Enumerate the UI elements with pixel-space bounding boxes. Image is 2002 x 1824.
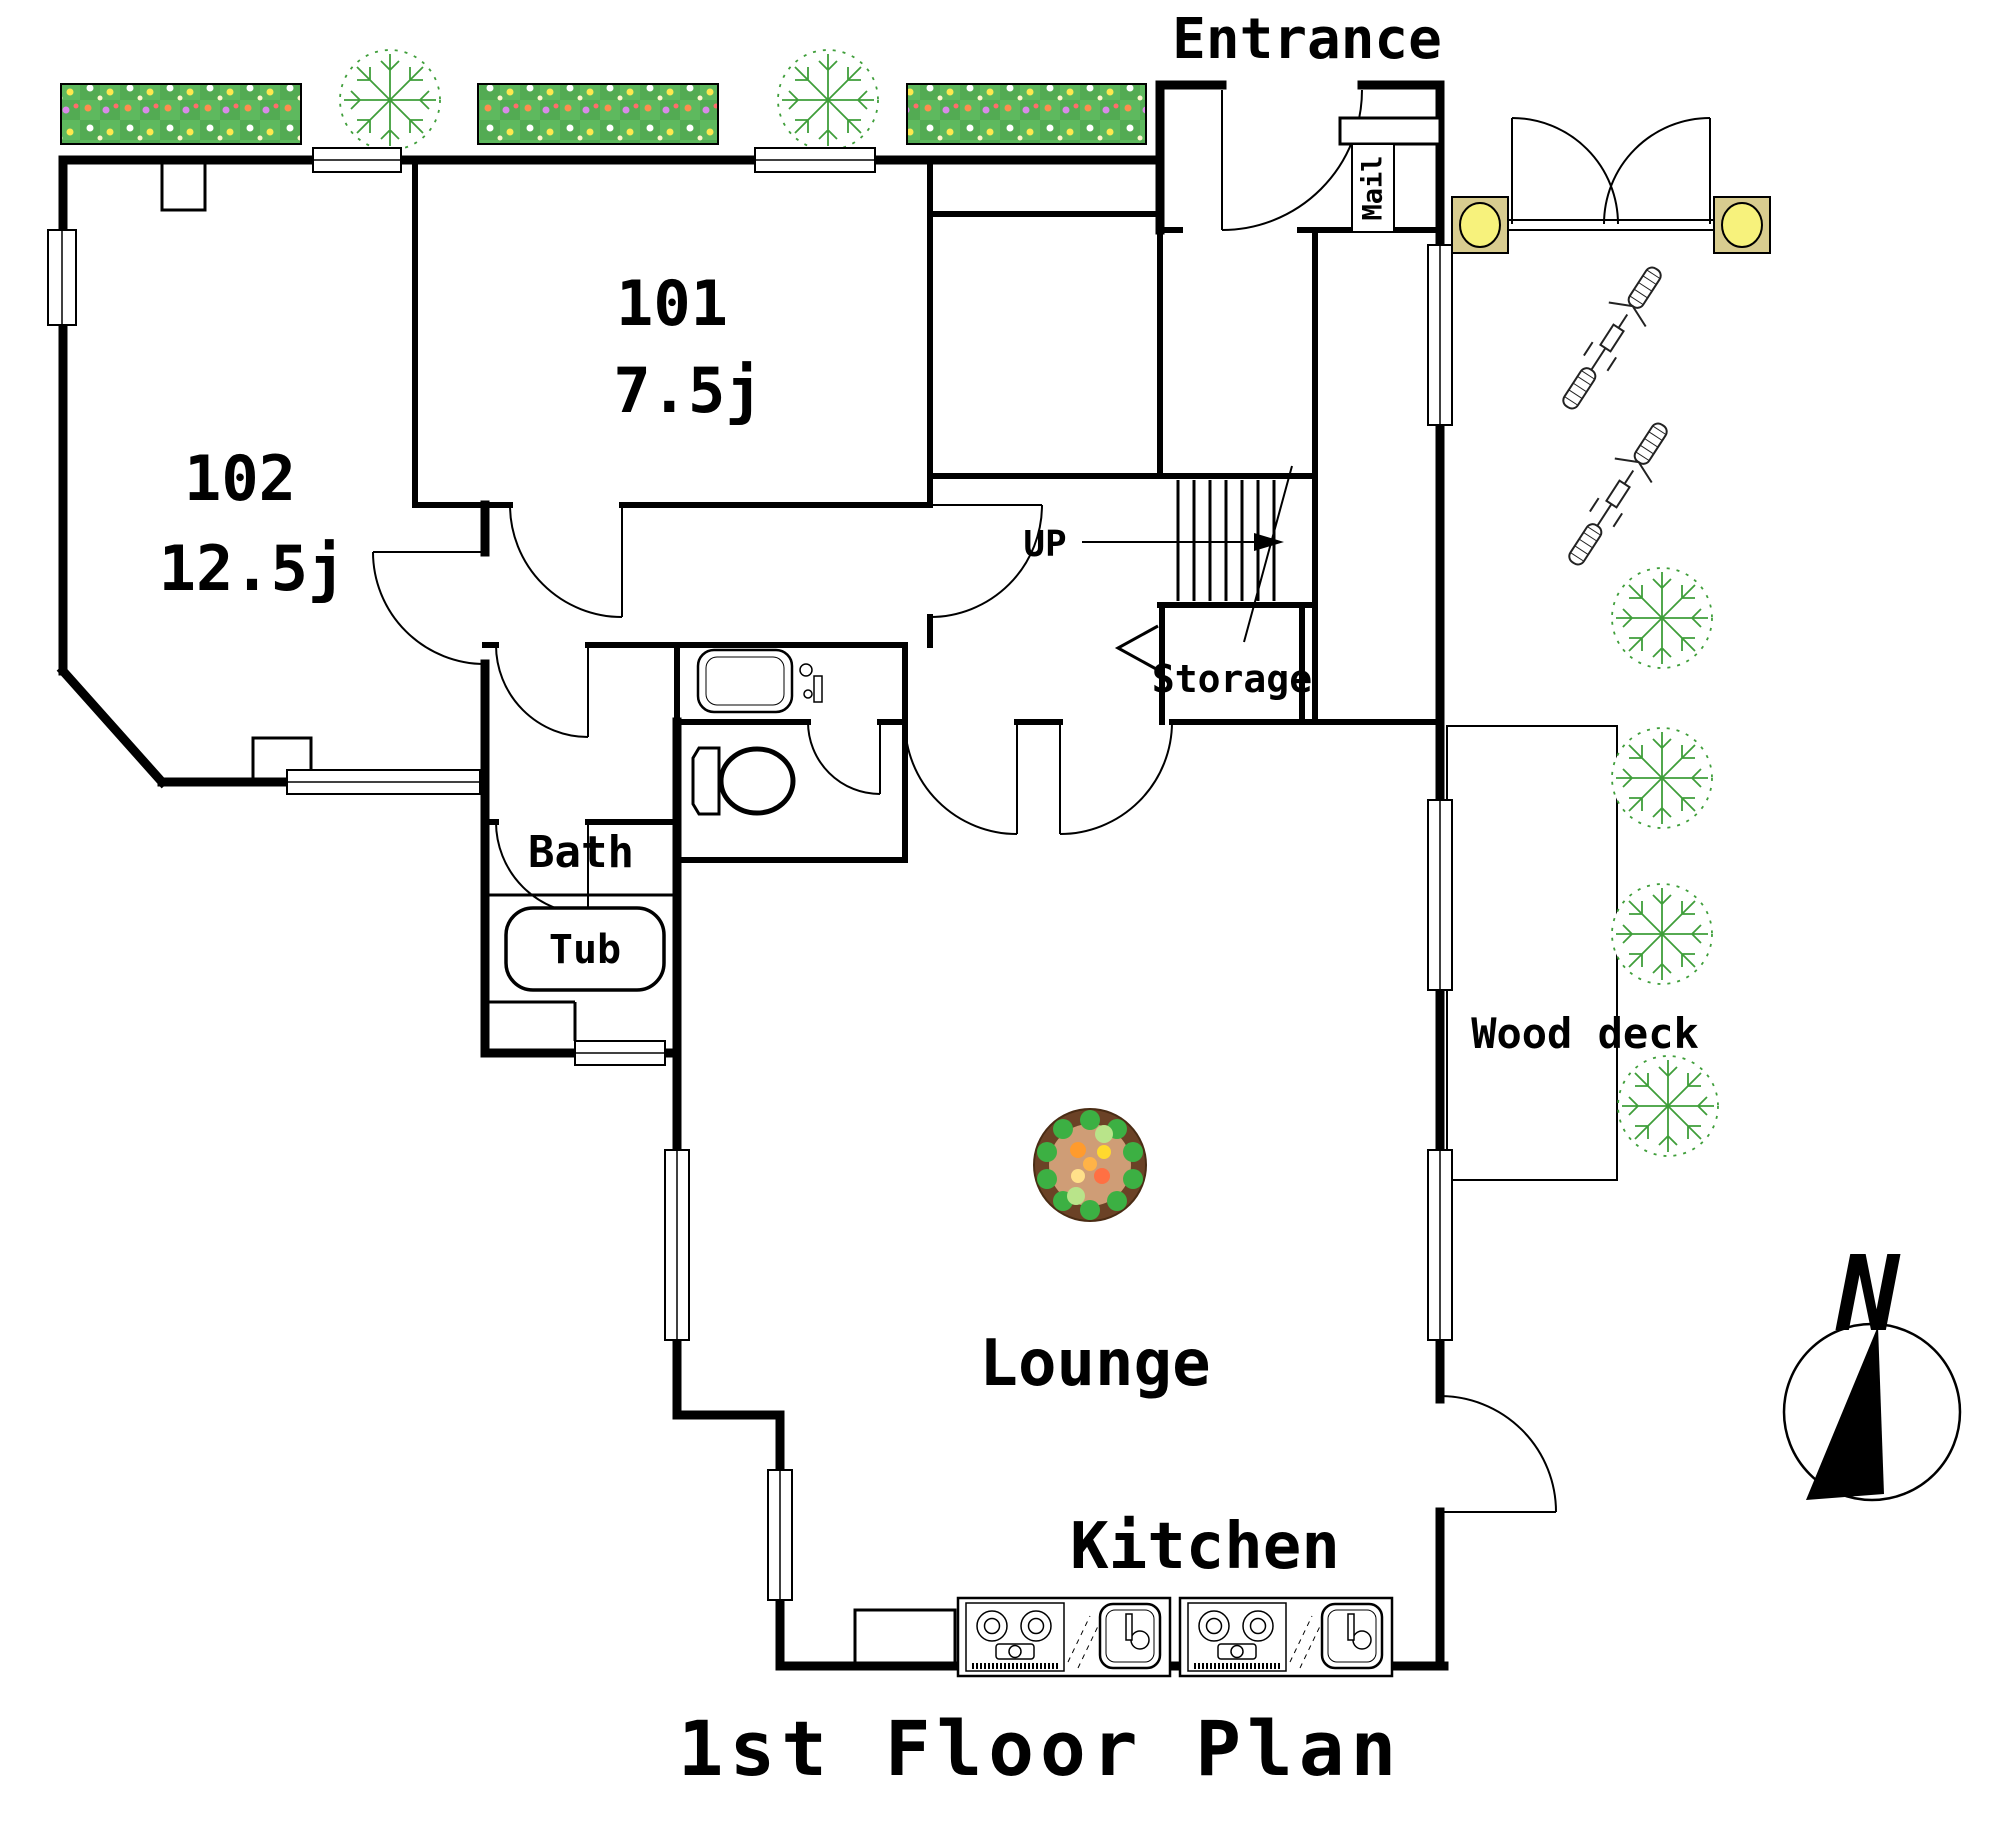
door-lounge-a [905, 722, 1017, 834]
compass: N [1784, 1233, 1960, 1500]
kitchen-label: Kitchen [1070, 1510, 1340, 1584]
wall [677, 722, 780, 1666]
lounge-label: Lounge [979, 1327, 1210, 1401]
window [768, 1470, 792, 1600]
wood-deck-area [1447, 726, 1617, 1180]
room-101: 101 7.5j [613, 267, 762, 427]
tree-icon [1612, 884, 1712, 984]
flower-bed [478, 84, 718, 144]
window [313, 148, 401, 172]
entrance-door [1222, 90, 1362, 230]
stair-break-line [1244, 466, 1292, 642]
tree-icon [340, 50, 440, 150]
room-labels: Entrance 101 7.5j 102 12.5j Bath Lounge … [159, 7, 1442, 1584]
garden-strip [61, 50, 1146, 150]
bicycle-icon [1549, 257, 1675, 419]
door-lounge-b [1060, 722, 1172, 834]
entrance-gate [1452, 118, 1770, 575]
up-label: UP [1023, 524, 1066, 565]
door-kitchen-exterior [1440, 1396, 1556, 1512]
room-102-number: 102 [184, 442, 296, 515]
window [755, 148, 875, 172]
window [575, 1041, 665, 1065]
window [1428, 800, 1452, 990]
fixtures: Mail Tub [506, 118, 1440, 1676]
gate-door-arc [1604, 118, 1710, 224]
window [1428, 245, 1452, 425]
door-washroom [496, 645, 588, 737]
planter-icon [1034, 1109, 1146, 1221]
flower-bed [61, 84, 301, 144]
window [287, 770, 480, 794]
bicycle-icon [1555, 413, 1681, 575]
wall-notch [855, 1610, 955, 1666]
window [1428, 1150, 1452, 1340]
gate-lamp [1722, 203, 1762, 247]
bath-label: Bath [528, 827, 634, 878]
door-102 [373, 552, 485, 664]
floor-plan-page: Wood deck [0, 0, 2002, 1824]
flower-bed [907, 84, 1146, 144]
kitchen-unit-icon [1180, 1598, 1392, 1676]
mail-label: Mail [1358, 155, 1389, 220]
gate-lamp [1460, 203, 1500, 247]
room-102: 102 12.5j [159, 442, 346, 605]
building-walls [63, 85, 1444, 1666]
wall-notch [162, 164, 205, 210]
wall [930, 214, 1160, 476]
wood-deck-label: Wood deck [1471, 1009, 1699, 1058]
door-101 [510, 505, 622, 617]
tree-icon [1612, 568, 1712, 668]
kitchen-unit-icon [958, 1598, 1170, 1676]
mail-shelf [1340, 118, 1440, 144]
window [48, 230, 76, 325]
staircase: UP Storage [1023, 466, 1312, 701]
bathtub-icon: Tub [506, 908, 664, 990]
wood-deck: Wood deck [1447, 568, 1718, 1180]
tree-icon [778, 50, 878, 150]
floor-plan-svg: Wood deck [0, 0, 2002, 1824]
wall [63, 671, 162, 782]
door-wc [808, 722, 880, 794]
tree-icon [1612, 728, 1712, 828]
room-102-area: 12.5j [159, 532, 346, 605]
gate-door-arc [1512, 118, 1618, 224]
compass-north-label: N [1835, 1233, 1901, 1355]
toilet-icon [693, 748, 793, 814]
window [665, 1150, 689, 1340]
tree-icon [1618, 1056, 1718, 1156]
doors [373, 90, 1556, 1512]
tub-label: Tub [549, 927, 621, 973]
storage-label: Storage [1152, 657, 1312, 701]
entrance-label: Entrance [1172, 7, 1442, 72]
washbasin-icon [698, 650, 822, 712]
page-title: 1st Floor Plan [678, 1704, 1403, 1793]
room-101-area: 7.5j [613, 354, 762, 427]
room-101-number: 101 [616, 267, 728, 340]
